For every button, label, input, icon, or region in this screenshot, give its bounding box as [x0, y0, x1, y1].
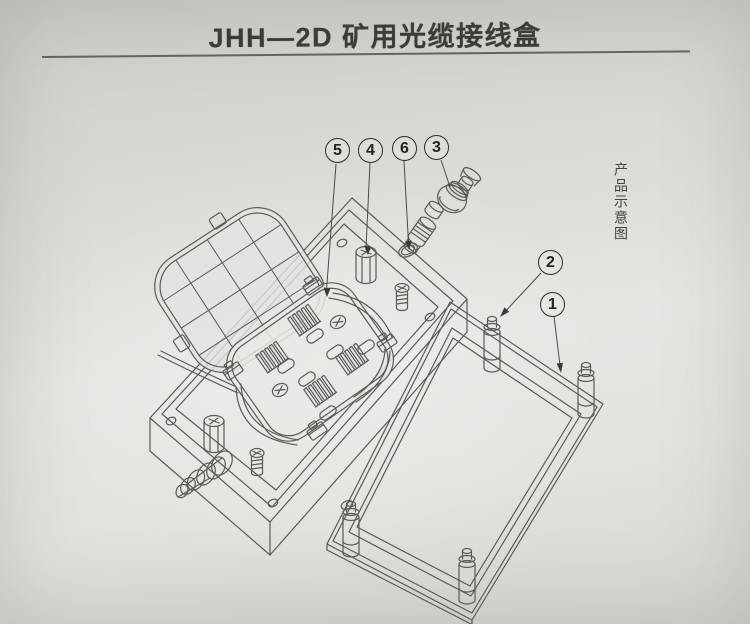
callout-circle-6: 6: [392, 136, 417, 161]
callout-circle-5: 5: [325, 138, 350, 163]
photographed-page: JHH—2D 矿用光缆接线盒 产品示意图 5 4 6 3 2 1: [0, 0, 750, 624]
leader-line-1: [554, 317, 560, 366]
callout-circle-1: 1: [540, 292, 565, 317]
corner-stud: [578, 363, 594, 419]
callout-circle-2: 2: [538, 250, 563, 275]
gland-body: [401, 215, 438, 256]
callout-circle-3: 3: [424, 135, 449, 160]
pan-head-screw: [395, 284, 409, 311]
hex-standoff: [356, 247, 376, 284]
leader-arrow-1: [557, 363, 563, 373]
callout-circle-4: 4: [358, 138, 383, 163]
corner-stud: [459, 549, 475, 605]
leader-line-4: [366, 163, 370, 248]
leader-line-3: [441, 160, 450, 187]
leader-line-5: [327, 164, 337, 290]
exploded-view-drawing: [0, 0, 750, 624]
pan-head-screw: [250, 449, 264, 476]
leader-line-2: [502, 273, 541, 315]
cable-gland-installed: [174, 447, 237, 500]
gland-cap: [454, 165, 483, 194]
product-label-vertical: 产品示意图: [611, 162, 631, 242]
leader-line-6: [404, 161, 409, 243]
